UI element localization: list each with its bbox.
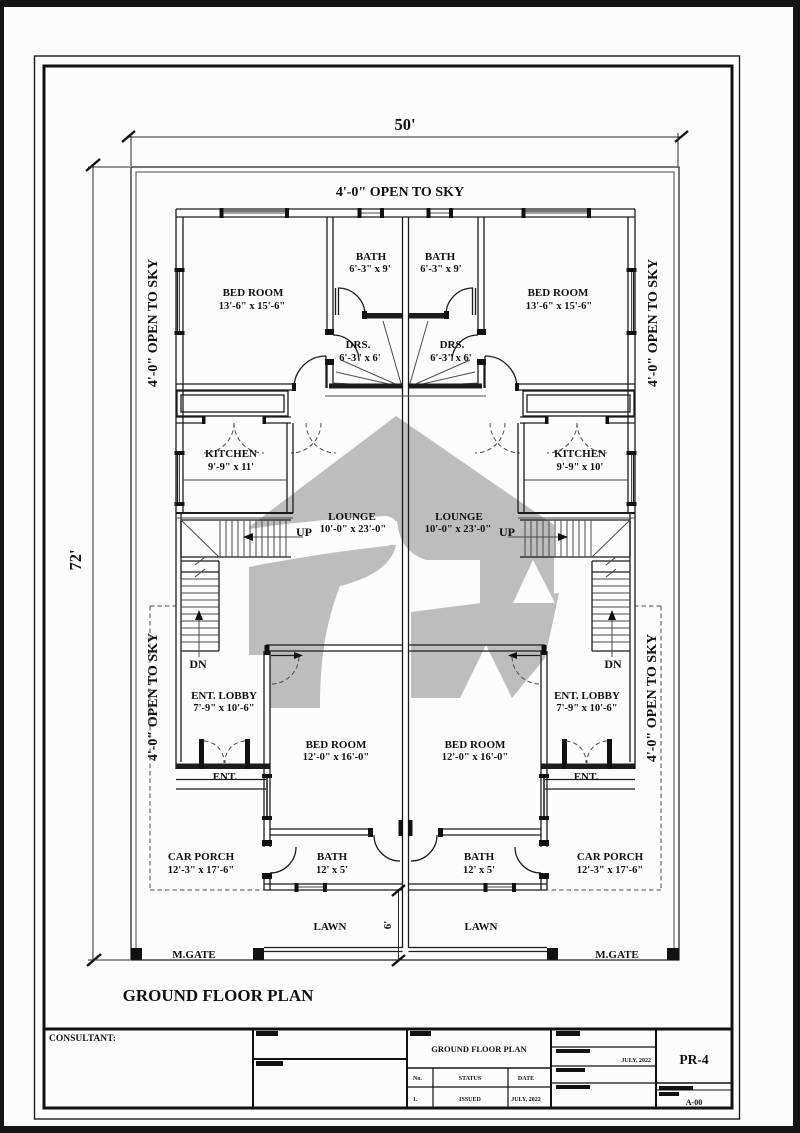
svg-text:ENT.: ENT.	[213, 771, 238, 783]
svg-text:12'-0" x 16'-0": 12'-0" x 16'-0"	[303, 752, 370, 763]
svg-text:10'-0" x 23'-0": 10'-0" x 23'-0"	[320, 524, 387, 535]
svg-text:CAR PORCH: CAR PORCH	[168, 851, 235, 863]
svg-text:72': 72'	[66, 549, 85, 570]
svg-text:12'-0" x 16'-0": 12'-0" x 16'-0"	[442, 752, 509, 763]
svg-text:BATH: BATH	[425, 251, 456, 263]
svg-text:KITCHEN: KITCHEN	[205, 448, 257, 460]
svg-text:ENT. LOBBY: ENT. LOBBY	[191, 690, 257, 702]
svg-text:4'-0" OPEN TO SKY: 4'-0" OPEN TO SKY	[146, 259, 161, 387]
svg-text:LOUNGE: LOUNGE	[435, 511, 483, 523]
svg-text:BATH: BATH	[317, 851, 348, 863]
svg-text:DATE: DATE	[518, 1076, 534, 1082]
svg-text:6'-3" x 9': 6'-3" x 9'	[349, 264, 390, 275]
svg-text:12' x 5': 12' x 5'	[316, 865, 348, 876]
svg-text:BATH: BATH	[356, 251, 387, 263]
svg-text:BED ROOM: BED ROOM	[445, 739, 506, 751]
svg-text:GROUND FLOOR PLAN: GROUND FLOOR PLAN	[431, 1044, 527, 1054]
svg-text:CAR PORCH: CAR PORCH	[577, 851, 644, 863]
svg-text:7'-9" x 10'-6": 7'-9" x 10'-6"	[556, 703, 617, 714]
svg-text:GROUND FLOOR PLAN: GROUND FLOOR PLAN	[123, 986, 315, 1005]
svg-text:4'-0" OPEN TO SKY: 4'-0" OPEN TO SKY	[646, 259, 661, 387]
svg-text:12'-3" x 17'-6": 12'-3" x 17'-6"	[577, 865, 644, 876]
svg-text:ENT.: ENT.	[574, 771, 599, 783]
svg-text:7'-9" x 10'-6": 7'-9" x 10'-6"	[193, 703, 254, 714]
svg-text:9'-9" x 10': 9'-9" x 10'	[557, 462, 604, 473]
svg-text:6': 6'	[382, 921, 394, 930]
svg-text:KITCHEN: KITCHEN	[554, 448, 606, 460]
svg-text:4'-0" OPEN TO SKY: 4'-0" OPEN TO SKY	[146, 633, 161, 761]
svg-text:LAWN: LAWN	[313, 921, 346, 933]
svg-text:No.: No.	[413, 1076, 422, 1082]
svg-text:BED ROOM: BED ROOM	[528, 287, 589, 299]
svg-text:M.GATE: M.GATE	[595, 949, 639, 961]
svg-text:50': 50'	[394, 115, 415, 134]
svg-text:BED ROOM: BED ROOM	[223, 287, 284, 299]
svg-text:4'-0" OPEN TO SKY: 4'-0" OPEN TO SKY	[645, 634, 660, 762]
svg-text:STATUS: STATUS	[459, 1076, 482, 1082]
svg-text:1.: 1.	[413, 1097, 418, 1103]
svg-text:ISSUED: ISSUED	[459, 1097, 481, 1103]
svg-text:PR-4: PR-4	[679, 1052, 708, 1067]
svg-text:13'-6" x 15'-6": 13'-6" x 15'-6"	[219, 301, 286, 312]
svg-text:BED ROOM: BED ROOM	[306, 739, 367, 751]
svg-text:4'-0" OPEN TO SKY: 4'-0" OPEN TO SKY	[336, 185, 464, 200]
svg-text:CONSULTANT:: CONSULTANT:	[49, 1034, 116, 1044]
svg-text:JULY, 2022: JULY, 2022	[511, 1097, 541, 1103]
svg-text:13'-6" x 15'-6": 13'-6" x 15'-6"	[526, 301, 593, 312]
svg-text:DRS.: DRS.	[440, 339, 465, 351]
svg-text:UP: UP	[499, 525, 515, 539]
svg-text:BATH: BATH	[464, 851, 495, 863]
svg-text:UP: UP	[296, 525, 312, 539]
svg-text:DN: DN	[189, 657, 207, 671]
svg-text:ENT. LOBBY: ENT. LOBBY	[554, 690, 620, 702]
svg-text:JULY, 2022: JULY, 2022	[621, 1058, 651, 1064]
svg-text:LAWN: LAWN	[464, 921, 497, 933]
svg-text:DN: DN	[604, 657, 622, 671]
svg-text:LOUNGE: LOUNGE	[328, 511, 376, 523]
svg-text:DRS.: DRS.	[346, 339, 371, 351]
svg-text:12'-3" x 17'-6": 12'-3" x 17'-6"	[168, 865, 235, 876]
svg-text:9'-9" x 11': 9'-9" x 11'	[208, 462, 254, 473]
svg-text:10'-0" x 23'-0": 10'-0" x 23'-0"	[425, 524, 492, 535]
svg-text:12' x 5': 12' x 5'	[463, 865, 495, 876]
svg-text:6'-3" x 9': 6'-3" x 9'	[420, 264, 461, 275]
svg-text:A-00: A-00	[686, 1098, 702, 1107]
svg-text:M.GATE: M.GATE	[172, 949, 216, 961]
